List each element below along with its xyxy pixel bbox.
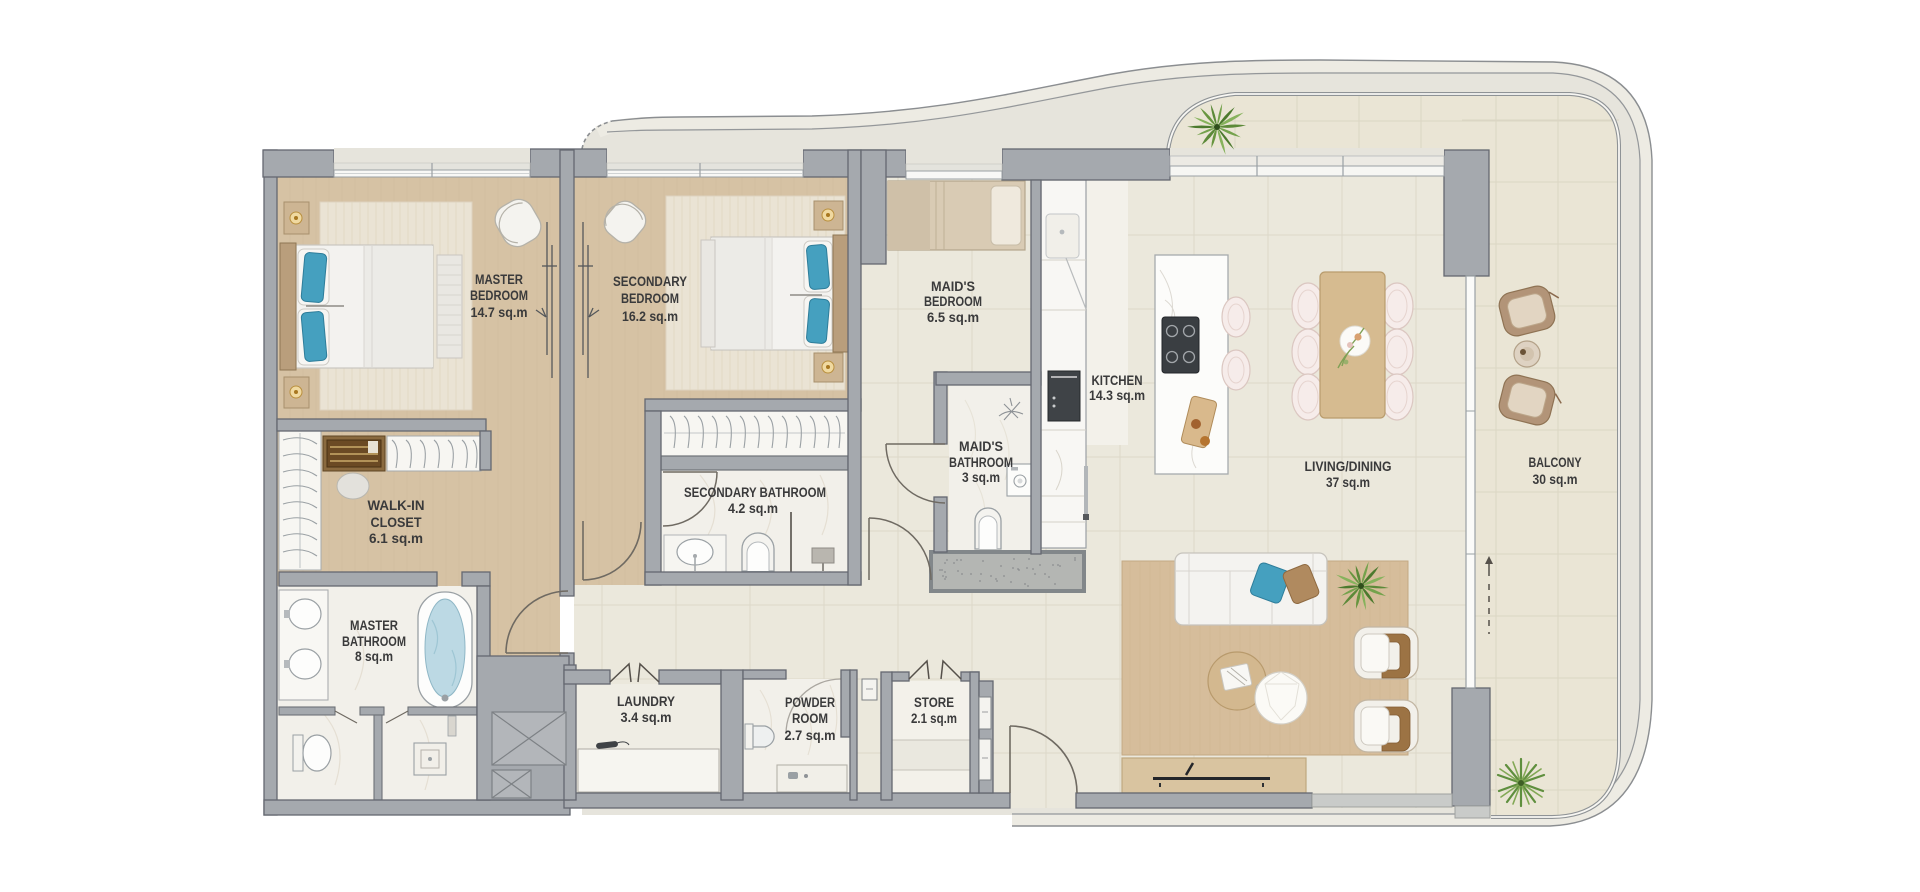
svg-text:14.7 sq.m: 14.7 sq.m	[471, 305, 528, 320]
svg-text:MASTER: MASTER	[350, 618, 398, 633]
svg-text:MAID'S: MAID'S	[959, 439, 1003, 454]
svg-text:2.1 sq.m: 2.1 sq.m	[911, 711, 957, 726]
svg-text:KITCHEN: KITCHEN	[1092, 373, 1143, 388]
svg-text:STORE: STORE	[914, 695, 954, 710]
svg-text:SECONDARY BATHROOM: SECONDARY BATHROOM	[684, 485, 826, 500]
svg-text:2.7 sq.m: 2.7 sq.m	[785, 728, 836, 743]
svg-text:WALK-IN: WALK-IN	[368, 498, 425, 513]
svg-text:LAUNDRY: LAUNDRY	[617, 694, 675, 709]
svg-text:BATHROOM: BATHROOM	[342, 634, 406, 649]
svg-text:CLOSET: CLOSET	[371, 515, 423, 530]
svg-text:SECONDARY: SECONDARY	[613, 274, 687, 289]
svg-text:6.5 sq.m: 6.5 sq.m	[927, 310, 979, 325]
svg-text:14.3 sq.m: 14.3 sq.m	[1089, 388, 1145, 403]
svg-text:LIVING/DINING: LIVING/DINING	[1305, 459, 1392, 474]
svg-text:30 sq.m: 30 sq.m	[1533, 472, 1578, 487]
svg-text:16.2 sq.m: 16.2 sq.m	[622, 309, 678, 324]
svg-text:POWDER: POWDER	[785, 695, 835, 710]
svg-text:3.4 sq.m: 3.4 sq.m	[621, 710, 672, 725]
svg-text:BEDROOM: BEDROOM	[470, 288, 528, 303]
svg-text:37 sq.m: 37 sq.m	[1326, 475, 1370, 490]
svg-text:MAID'S: MAID'S	[931, 279, 975, 294]
svg-text:3 sq.m: 3 sq.m	[962, 470, 1000, 485]
svg-text:MASTER: MASTER	[475, 272, 523, 287]
svg-text:4.2 sq.m: 4.2 sq.m	[728, 501, 778, 516]
svg-text:ROOM: ROOM	[792, 711, 828, 726]
svg-text:8 sq.m: 8 sq.m	[355, 649, 393, 664]
svg-text:BEDROOM: BEDROOM	[621, 291, 679, 306]
svg-text:BEDROOM: BEDROOM	[924, 294, 982, 309]
svg-text:6.1 sq.m: 6.1 sq.m	[369, 531, 423, 546]
svg-text:BALCONY: BALCONY	[1529, 455, 1582, 470]
svg-text:BATHROOM: BATHROOM	[949, 455, 1013, 470]
